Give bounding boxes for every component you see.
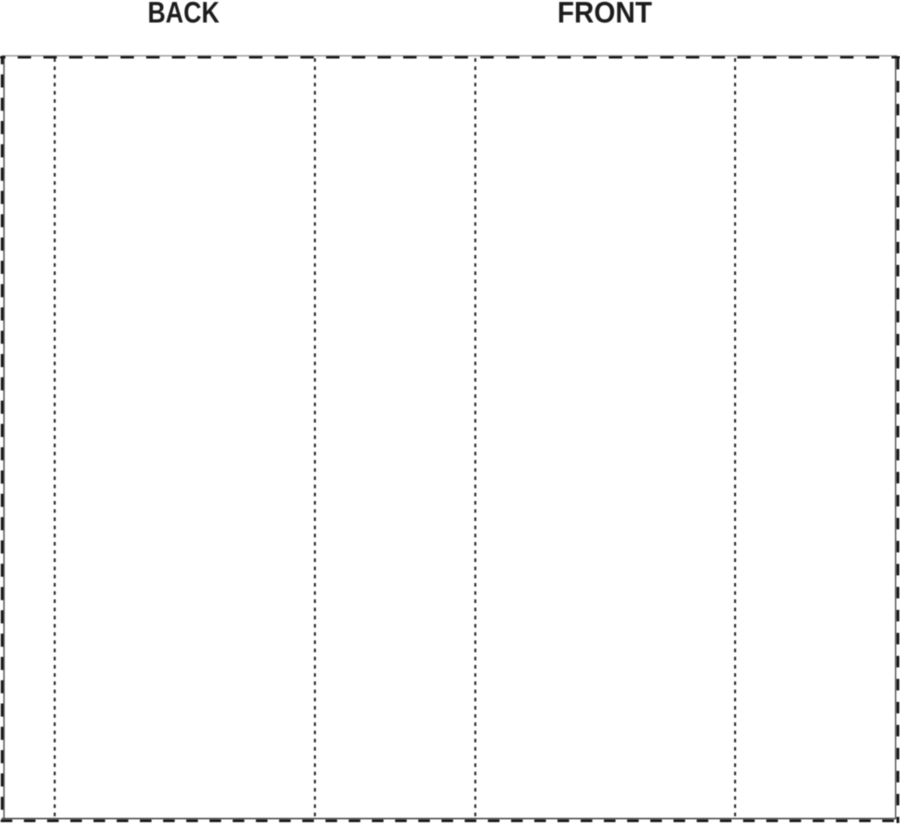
- svg-text:FRONT: FRONT: [557, 0, 652, 30]
- svg-text:BACK: BACK: [148, 0, 220, 30]
